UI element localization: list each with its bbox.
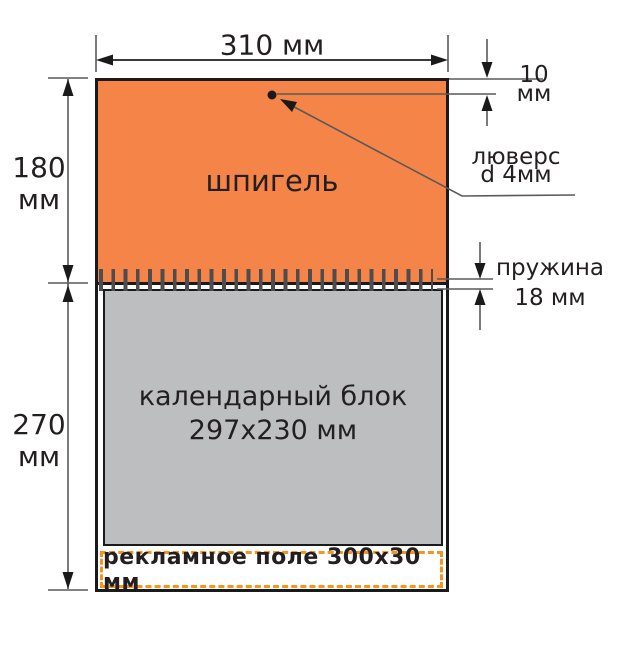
ad-field: рекламное поле 300x30 мм <box>100 551 443 588</box>
calendar-block-label: календарный блок 297x230 мм <box>139 380 408 448</box>
spring-binding-ticks <box>99 269 433 291</box>
dim-label-header-height: 180 мм <box>12 152 65 216</box>
calendar-block-label-line2: 297x230 мм <box>139 414 408 448</box>
header-label: шпигель <box>205 164 338 198</box>
calendar-block-label-line1: календарный блок <box>139 380 408 414</box>
eyelet-label: люверс d 4мм <box>471 148 560 184</box>
spring-label: пружина 18 мм <box>496 253 604 313</box>
ad-field-label: рекламное поле 300x30 мм <box>103 545 440 595</box>
dim-label-block-height: 270 мм <box>12 409 65 473</box>
dim-label-total-width: 310 мм <box>220 29 325 62</box>
calendar-dimension-diagram: рекламное поле 300x30 мм <box>0 0 619 646</box>
dim-label-eyelet-offset: 10 мм <box>517 66 552 104</box>
